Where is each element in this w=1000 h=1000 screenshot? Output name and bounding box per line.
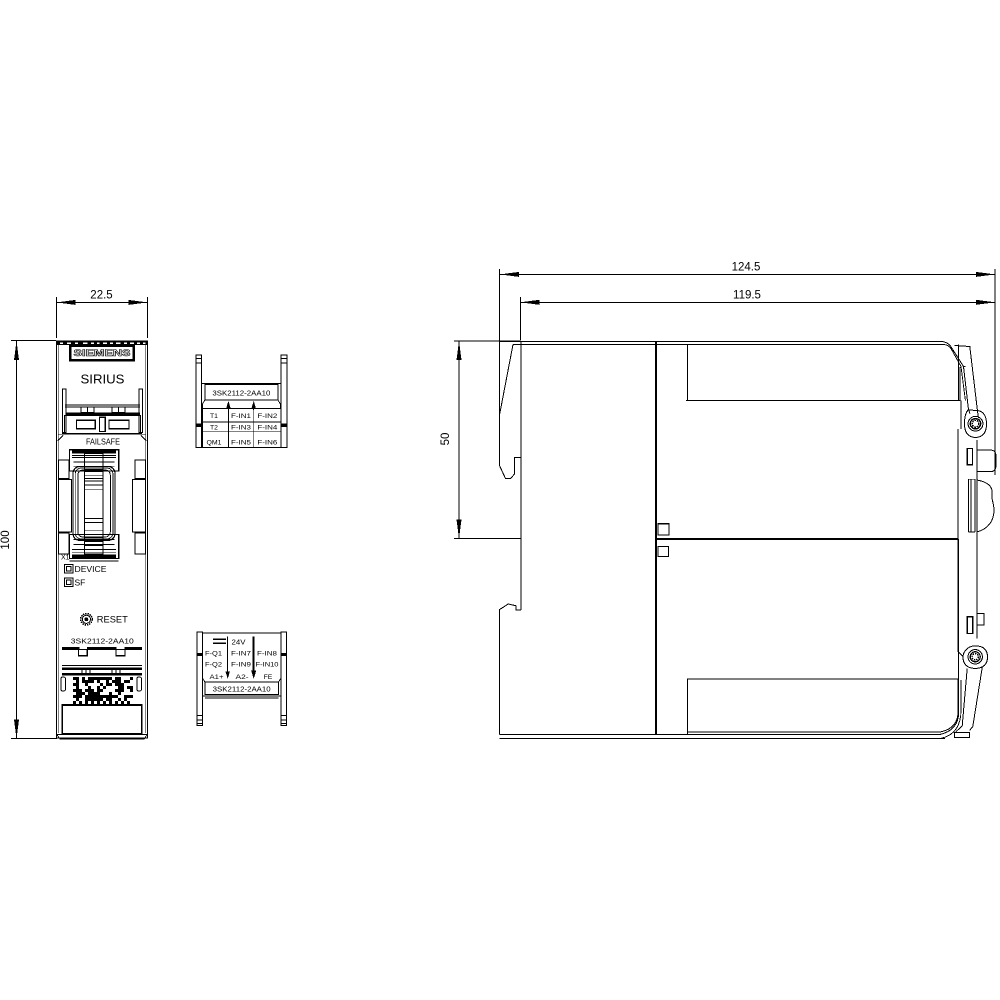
svg-text:F-IN9: F-IN9 xyxy=(231,662,251,669)
svg-text:F-IN5: F-IN5 xyxy=(231,439,251,446)
svg-text:X1: X1 xyxy=(61,555,70,562)
svg-text:3SK2112-2AA10: 3SK2112-2AA10 xyxy=(213,687,271,694)
svg-text:SIEMENS: SIEMENS xyxy=(74,348,131,358)
svg-text:A1+: A1+ xyxy=(210,674,224,681)
svg-text:F-IN3: F-IN3 xyxy=(231,424,251,431)
svg-text:SIRIUS: SIRIUS xyxy=(81,373,125,387)
svg-text:DEVICE: DEVICE xyxy=(75,564,107,574)
svg-text:100: 100 xyxy=(0,530,12,549)
svg-text:3SK2112-2AA10: 3SK2112-2AA10 xyxy=(212,390,270,397)
svg-text:SF: SF xyxy=(75,577,86,587)
svg-text:QM1: QM1 xyxy=(207,439,222,446)
svg-text:F-IN1: F-IN1 xyxy=(231,413,251,420)
svg-text:F-IN8: F-IN8 xyxy=(257,650,277,657)
svg-text:T2: T2 xyxy=(210,424,218,431)
svg-text:124.5: 124.5 xyxy=(732,262,761,274)
svg-text:24V: 24V xyxy=(232,637,246,646)
svg-text:A2-: A2- xyxy=(236,674,249,681)
svg-text:T1: T1 xyxy=(210,413,218,420)
svg-text:22.5: 22.5 xyxy=(90,290,112,302)
svg-text:RESET: RESET xyxy=(97,614,129,624)
svg-text:F-IN4: F-IN4 xyxy=(257,424,277,431)
svg-text:F-IN6: F-IN6 xyxy=(257,439,277,446)
svg-text:F-Q2: F-Q2 xyxy=(205,662,222,669)
svg-text:F-IN7: F-IN7 xyxy=(231,650,251,657)
svg-text:50: 50 xyxy=(440,433,452,446)
svg-text:F-Q1: F-Q1 xyxy=(205,650,222,657)
svg-text:FAILSAFE: FAILSAFE xyxy=(86,438,120,447)
svg-text:F-IN10: F-IN10 xyxy=(256,662,279,669)
svg-text:3SK2112-2AA10: 3SK2112-2AA10 xyxy=(71,637,134,646)
svg-text:FE: FE xyxy=(264,674,273,681)
svg-text:F-IN2: F-IN2 xyxy=(257,413,277,420)
svg-text:119.5: 119.5 xyxy=(733,290,761,302)
